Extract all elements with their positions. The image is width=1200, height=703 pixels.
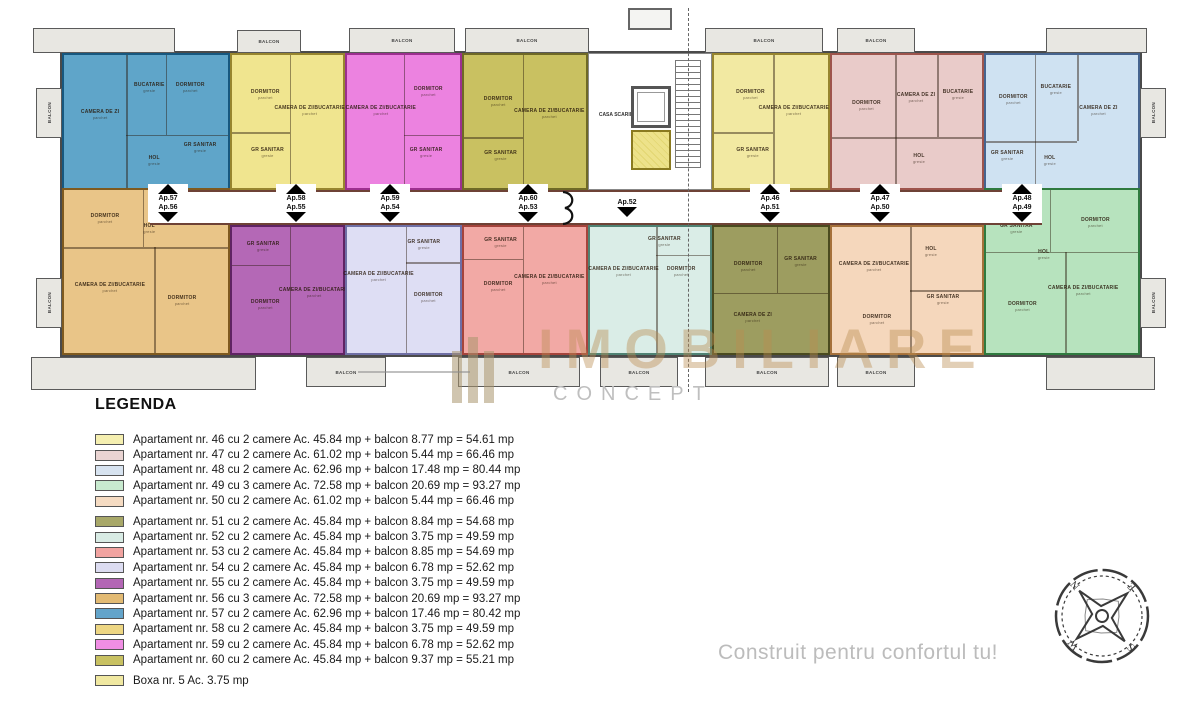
legend-row: Apartament nr. 53 cu 2 camere Ac. 45.84 … [95, 545, 520, 560]
apartment-number-bottom: Ap.49 [1012, 203, 1031, 212]
legend-text: Boxa nr. 5 Ac. 3.75 mp [133, 675, 249, 687]
room-label: CAMERA DE ZI/BUCATARIEparchet [514, 109, 584, 119]
room-label: DORMITORparchet [251, 90, 280, 100]
inner-wall [523, 55, 525, 188]
room-label: CAMERA DE ZI/BUCATARIEparchet [588, 267, 658, 277]
legend-swatch [95, 578, 124, 589]
slogan-text: Construit pentru confortul tu! [718, 641, 998, 665]
inner-wall [1065, 252, 1067, 353]
apartment-number-bottom: Ap.53 [518, 203, 537, 212]
inner-wall [166, 55, 168, 135]
room-label: HOLgresie [1044, 156, 1056, 166]
legend-text: Apartament nr. 57 cu 2 camere Ac. 62.96 … [133, 608, 520, 620]
room-label: DORMITORparchet [1081, 218, 1110, 228]
room-label: HOLgresie [925, 247, 937, 257]
legend-swatch [95, 496, 124, 507]
inner-wall [714, 293, 828, 295]
legend-row: Apartament nr. 52 cu 2 camere Ac. 45.84 … [95, 529, 520, 544]
inner-wall [714, 132, 773, 134]
watermark-concept-text: CONCEPT [553, 383, 714, 406]
room-label: GR SANITARgresie [784, 257, 817, 267]
balcony [1046, 357, 1155, 390]
inner-wall [656, 255, 710, 257]
inner-wall [523, 227, 525, 353]
balcony: BALCON [705, 28, 823, 53]
room-label: CAMERA DE ZIparchet [734, 313, 772, 323]
apartment-number-bottom: Ap.54 [380, 203, 399, 212]
balcony: BALCON [36, 278, 62, 328]
room-label: GR SANITARgresie [648, 237, 681, 247]
arrow-up-icon [380, 184, 400, 194]
balcony: BALCON [465, 28, 589, 53]
inner-wall [64, 247, 228, 249]
room-label: CAMERA DE ZI/BUCATARIEparchet [274, 106, 344, 116]
legend-row: Apartament nr. 50 cu 2 camere Ac. 61.02 … [95, 494, 520, 509]
inner-wall [154, 247, 156, 353]
apartment-54: GR SANITARgresieCAMERA DE ZI/BUCATARIEpa… [345, 225, 462, 355]
legend-text: Apartament nr. 58 cu 2 camere Ac. 45.84 … [133, 623, 514, 635]
apartment-60: DORMITORparchetCAMERA DE ZI/BUCATARIEpar… [462, 53, 588, 190]
room-label: GR SANITARgresie [927, 295, 960, 305]
floor-plan: CASA SCARII IMOBILIARE CONCEPT CAMERA DE… [0, 0, 1200, 420]
room-label: BUCATARIEgresie [134, 83, 165, 93]
legend: LEGENDA Apartament nr. 46 cu 2 camere Ac… [95, 396, 520, 688]
inner-wall [126, 55, 128, 188]
inner-wall [406, 262, 460, 264]
balcony: BALCON [237, 30, 301, 53]
legend-row: Apartament nr. 48 cu 2 camere Ac. 62.96 … [95, 463, 520, 478]
room-label: DORMITORparchet [484, 97, 513, 107]
legend-swatch [95, 516, 124, 527]
inner-wall [937, 55, 939, 137]
apartment-number-top: Ap.59 [380, 194, 399, 203]
inner-wall [777, 227, 779, 293]
legend-text: Apartament nr. 60 cu 2 camere Ac. 45.84 … [133, 654, 514, 666]
room-label: CAMERA DE ZI/BUCATARIEparchet [279, 288, 349, 298]
inner-wall [986, 141, 1077, 143]
legend-row: Apartament nr. 46 cu 2 camere Ac. 45.84 … [95, 432, 520, 447]
room-label: GR SANITARgresie [736, 148, 769, 158]
apartment-number-bottom: Ap.52 [617, 198, 636, 207]
room-label: HOLgresie [913, 154, 925, 164]
room-label: CAMERA DE ZI/BUCATARIEparchet [346, 106, 416, 116]
room-label: DORMITORparchet [852, 101, 881, 111]
arrow-down-icon [760, 212, 780, 222]
arrow-down-icon [518, 212, 538, 222]
room-label: BUCATARIEgresie [943, 90, 974, 100]
legend-text: Apartament nr. 48 cu 2 camere Ac. 62.96 … [133, 464, 520, 476]
room-label: DORMITORparchet [168, 296, 197, 306]
elevator-shaft [631, 86, 671, 128]
room-label: DORMITORparchet [734, 262, 763, 272]
entrance-marker: Ap.58Ap.55 [276, 184, 316, 222]
inner-wall [910, 290, 982, 292]
legend-text: Apartament nr. 52 cu 2 camere Ac. 45.84 … [133, 531, 514, 543]
legend-row: Apartament nr. 55 cu 2 camere Ac. 45.84 … [95, 576, 520, 591]
apartment-59: CAMERA DE ZI/BUCATARIEparchetDORMITORpar… [345, 53, 462, 190]
legend-text: Apartament nr. 49 cu 3 camere Ac. 72.58 … [133, 480, 520, 492]
apartment-47: DORMITORparchetCAMERA DE ZIparchetBUCATA… [830, 53, 984, 190]
room-label: HOLgresie [148, 156, 160, 166]
arrow-down-icon [617, 207, 637, 217]
room-label: CAMERA DE ZI/BUCATARIEparchet [759, 106, 829, 116]
room-label: CAMERA DE ZIparchet [81, 110, 119, 120]
entrance-marker: Ap.52 [607, 198, 647, 217]
apartment-number-bottom: Ap.55 [286, 203, 305, 212]
room-label: CAMERA DE ZI/BUCATARIEparchet [343, 272, 413, 282]
room-label: CAMERA DE ZIparchet [1079, 106, 1117, 116]
legend-text: Apartament nr. 56 cu 3 camere Ac. 72.58 … [133, 593, 520, 605]
section-break-mark [560, 190, 578, 226]
legend-swatch [95, 547, 124, 558]
legend-row: Apartament nr. 49 cu 3 camere Ac. 72.58 … [95, 478, 520, 493]
legend-text: Apartament nr. 51 cu 2 camere Ac. 45.84 … [133, 516, 514, 528]
apartment-55: GR SANITARgresieDORMITORparchetCAMERA DE… [230, 225, 345, 355]
inner-wall [404, 135, 461, 137]
arrow-down-icon [870, 212, 890, 222]
balcony: BALCON [349, 28, 455, 53]
apartment-58: DORMITORparchetCAMERA DE ZI/BUCATARIEpar… [230, 53, 345, 190]
arrow-up-icon [870, 184, 890, 194]
legend-row: Apartament nr. 58 cu 2 camere Ac. 45.84 … [95, 622, 520, 637]
room-label: DORMITORparchet [414, 87, 443, 97]
legend-text: Apartament nr. 46 cu 2 camere Ac. 45.84 … [133, 434, 514, 446]
apartment-number-bottom: Ap.50 [870, 203, 889, 212]
room-label: CAMERA DE ZI/BUCATARIEparchet [839, 262, 909, 272]
legend-text: Apartament nr. 59 cu 2 camere Ac. 45.84 … [133, 639, 514, 651]
room-label: HOLgresie [143, 224, 155, 234]
inner-wall [1050, 190, 1052, 252]
entrance-marker: Ap.48Ap.49 [1002, 184, 1042, 222]
balcony: BALCON [1140, 88, 1166, 138]
room-label: GR SANITARgresie [484, 151, 517, 161]
stairwell: CASA SCARII [588, 53, 712, 190]
room-label: DORMITORparchet [251, 300, 280, 310]
apartment-number-bottom: Ap.51 [760, 203, 779, 212]
legend-swatch [95, 593, 124, 604]
arrow-up-icon [286, 184, 306, 194]
apartment-48: DORMITORparchetBUCATARIEgresieCAMERA DE … [984, 53, 1140, 190]
legend-row: Apartament nr. 54 cu 2 camere Ac. 45.84 … [95, 560, 520, 575]
compass-n: N [1068, 578, 1082, 592]
inner-wall [773, 55, 775, 188]
room-label: GR SANITARgresie [407, 240, 440, 250]
balcony [31, 357, 256, 390]
room-label: DORMITORparchet [1008, 302, 1037, 312]
legend-swatch [95, 480, 124, 491]
inner-wall [232, 132, 290, 134]
arrow-up-icon [760, 184, 780, 194]
room-label: CAMERA DE ZI/BUCATARIEparchet [75, 283, 145, 293]
room-label: DORMITORparchet [999, 95, 1028, 105]
legend-items: Apartament nr. 46 cu 2 camere Ac. 45.84 … [95, 432, 520, 688]
arrow-up-icon [1012, 184, 1032, 194]
legend-row: Apartament nr. 59 cu 2 camere Ac. 45.84 … [95, 637, 520, 652]
legend-row: Apartament nr. 51 cu 2 camere Ac. 45.84 … [95, 514, 520, 529]
entrance-marker: Ap.57Ap.56 [148, 184, 188, 222]
balcony: BALCON [837, 28, 915, 53]
legend-row: Apartament nr. 60 cu 2 camere Ac. 45.84 … [95, 652, 520, 667]
inner-wall [464, 137, 523, 139]
entrance-marker: Ap.46Ap.51 [750, 184, 790, 222]
inner-wall [832, 137, 982, 139]
legend-row: Boxa nr. 5 Ac. 3.75 mp [95, 673, 520, 688]
arrow-down-icon [1012, 212, 1032, 222]
inner-wall [126, 135, 228, 137]
legend-swatch [95, 532, 124, 543]
room-label: GR SANITARgresie [247, 242, 280, 252]
room-label: CAMERA DE ZI/BUCATARIEparchet [1048, 286, 1118, 296]
room-label: DORMITORparchet [736, 90, 765, 100]
room-label: CAMERA DE ZIparchet [897, 93, 935, 103]
apartment-57: CAMERA DE ZIparchetBUCATARIEgresieDORMIT… [62, 53, 230, 190]
room-label: GR SANITARgresie [184, 143, 217, 153]
arrow-up-icon [518, 184, 538, 194]
apartment-number-bottom: Ap.56 [158, 203, 177, 212]
balcony: BALCON [1140, 278, 1166, 328]
legend-text: Apartament nr. 54 cu 2 camere Ac. 45.84 … [133, 562, 514, 574]
legend-swatch [95, 655, 124, 666]
room-label: HOLgresie [1038, 250, 1050, 260]
room-label: GR SANITARgresie [251, 148, 284, 158]
watermark-logo [452, 325, 508, 403]
inner-wall [1077, 55, 1079, 141]
legend-swatch [95, 562, 124, 573]
arrow-down-icon [380, 212, 400, 222]
room-label: DORMITORparchet [91, 214, 120, 224]
balcony: BALCON [705, 357, 829, 387]
entrance-marker: Ap.59Ap.54 [370, 184, 410, 222]
boxa-room [631, 130, 671, 170]
legend-swatch [95, 434, 124, 445]
inner-wall [986, 252, 1138, 254]
compass-rose-icon: N E S W [1052, 566, 1152, 666]
legend-row: Apartament nr. 56 cu 3 camere Ac. 72.58 … [95, 591, 520, 606]
apartment-number-top: Ap.58 [286, 194, 305, 203]
legend-title: LEGENDA [95, 396, 520, 414]
staircase-label: CASA SCARII [595, 112, 635, 118]
room-label: GR SANITARgresie [1000, 224, 1033, 234]
apartment-46: DORMITORparchetCAMERA DE ZI/BUCATARIEpar… [712, 53, 830, 190]
legend-row: Apartament nr. 47 cu 2 camere Ac. 61.02 … [95, 447, 520, 462]
apartment-52: GR SANITARgresieCAMERA DE ZI/BUCATARIEpa… [588, 225, 712, 355]
apartment-number-top: Ap.57 [158, 194, 177, 203]
apartment-number-top: Ap.48 [1012, 194, 1031, 203]
room-label: DORMITORparchet [863, 315, 892, 325]
entrance-marker: Ap.47Ap.50 [860, 184, 900, 222]
room-label: DORMITORparchet [176, 83, 205, 93]
balcony: BALCON [36, 88, 62, 138]
room-label: DORMITORparchet [667, 267, 696, 277]
floor-plan-page: CASA SCARII IMOBILIARE CONCEPT CAMERA DE… [0, 0, 1200, 703]
inner-wall [1035, 55, 1037, 188]
balcony: BALCON [837, 357, 915, 387]
room-label: GR SANITARgresie [991, 151, 1024, 161]
legend-text: Apartament nr. 50 cu 2 camere Ac. 61.02 … [133, 495, 514, 507]
balcony [33, 28, 175, 53]
apartment-50: CAMERA DE ZI/BUCATARIEparchetHOLgresieGR… [830, 225, 984, 355]
compass-s: S [1125, 641, 1138, 654]
apartment-number-top: Ap.47 [870, 194, 889, 203]
apartment-51: DORMITORparchetGR SANITARgresieCAMERA DE… [712, 225, 830, 355]
inner-wall [232, 265, 290, 267]
inner-wall [404, 55, 406, 188]
legend-swatch [95, 675, 124, 686]
entrance-canopy [628, 8, 672, 30]
legend-swatch [95, 624, 124, 635]
room-label: DORMITORparchet [414, 293, 443, 303]
legend-swatch [95, 450, 124, 461]
section-dashed-line [688, 8, 689, 392]
arrow-down-icon [158, 212, 178, 222]
inner-wall [464, 259, 523, 261]
legend-swatch [95, 608, 124, 619]
legend-swatch [95, 465, 124, 476]
room-label: GR SANITARgresie [410, 148, 443, 158]
balcony [1046, 28, 1147, 53]
entrance-marker: Ap.60Ap.53 [508, 184, 548, 222]
legend-text: Apartament nr. 53 cu 2 camere Ac. 45.84 … [133, 546, 514, 558]
inner-wall [895, 55, 897, 188]
inner-wall [290, 55, 292, 188]
room-label: CAMERA DE ZI/BUCATARIEparchet [514, 275, 584, 285]
legend-row: Apartament nr. 57 cu 2 camere Ac. 62.96 … [95, 606, 520, 621]
room-label: DORMITORparchet [484, 282, 513, 292]
watermark-underline [358, 371, 470, 373]
arrow-up-icon [158, 184, 178, 194]
legend-swatch [95, 639, 124, 650]
apartment-number-top: Ap.46 [760, 194, 779, 203]
arrow-down-icon [286, 212, 306, 222]
legend-text: Apartament nr. 55 cu 2 camere Ac. 45.84 … [133, 577, 514, 589]
apartment-number-top: Ap.60 [518, 194, 537, 203]
legend-text: Apartament nr. 47 cu 2 camere Ac. 61.02 … [133, 449, 514, 461]
inner-wall [143, 190, 145, 247]
room-label: BUCATARIEgresie [1041, 85, 1072, 95]
room-label: GR SANITARgresie [484, 238, 517, 248]
